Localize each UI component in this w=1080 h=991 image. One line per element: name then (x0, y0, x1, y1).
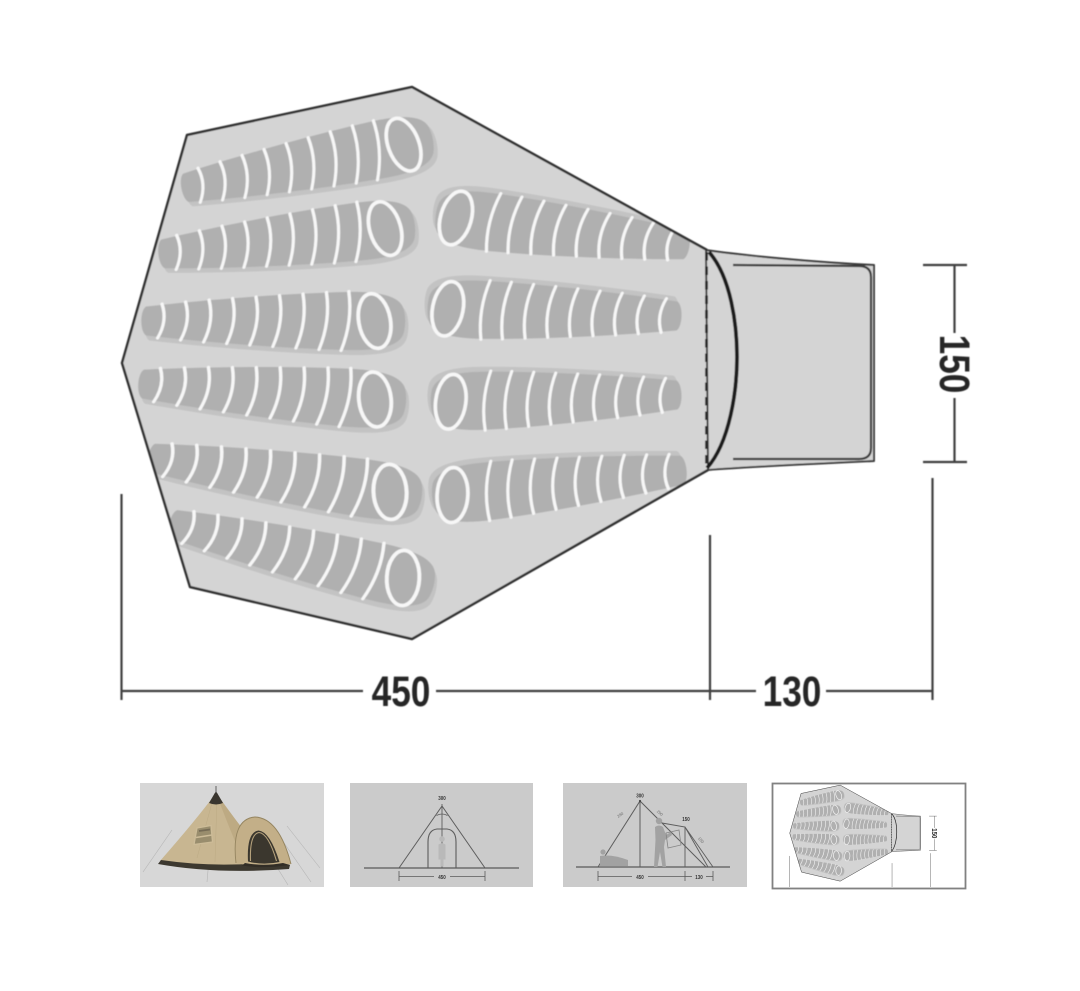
svg-text:150: 150 (682, 817, 690, 824)
svg-text:450: 450 (438, 875, 446, 882)
svg-text:150: 150 (930, 335, 978, 394)
svg-text:130: 130 (763, 668, 822, 716)
svg-text:450: 450 (636, 875, 644, 882)
svg-text:300: 300 (438, 796, 446, 803)
svg-text:450: 450 (372, 668, 431, 716)
svg-text:300: 300 (636, 793, 644, 800)
svg-text:130: 130 (695, 875, 703, 882)
